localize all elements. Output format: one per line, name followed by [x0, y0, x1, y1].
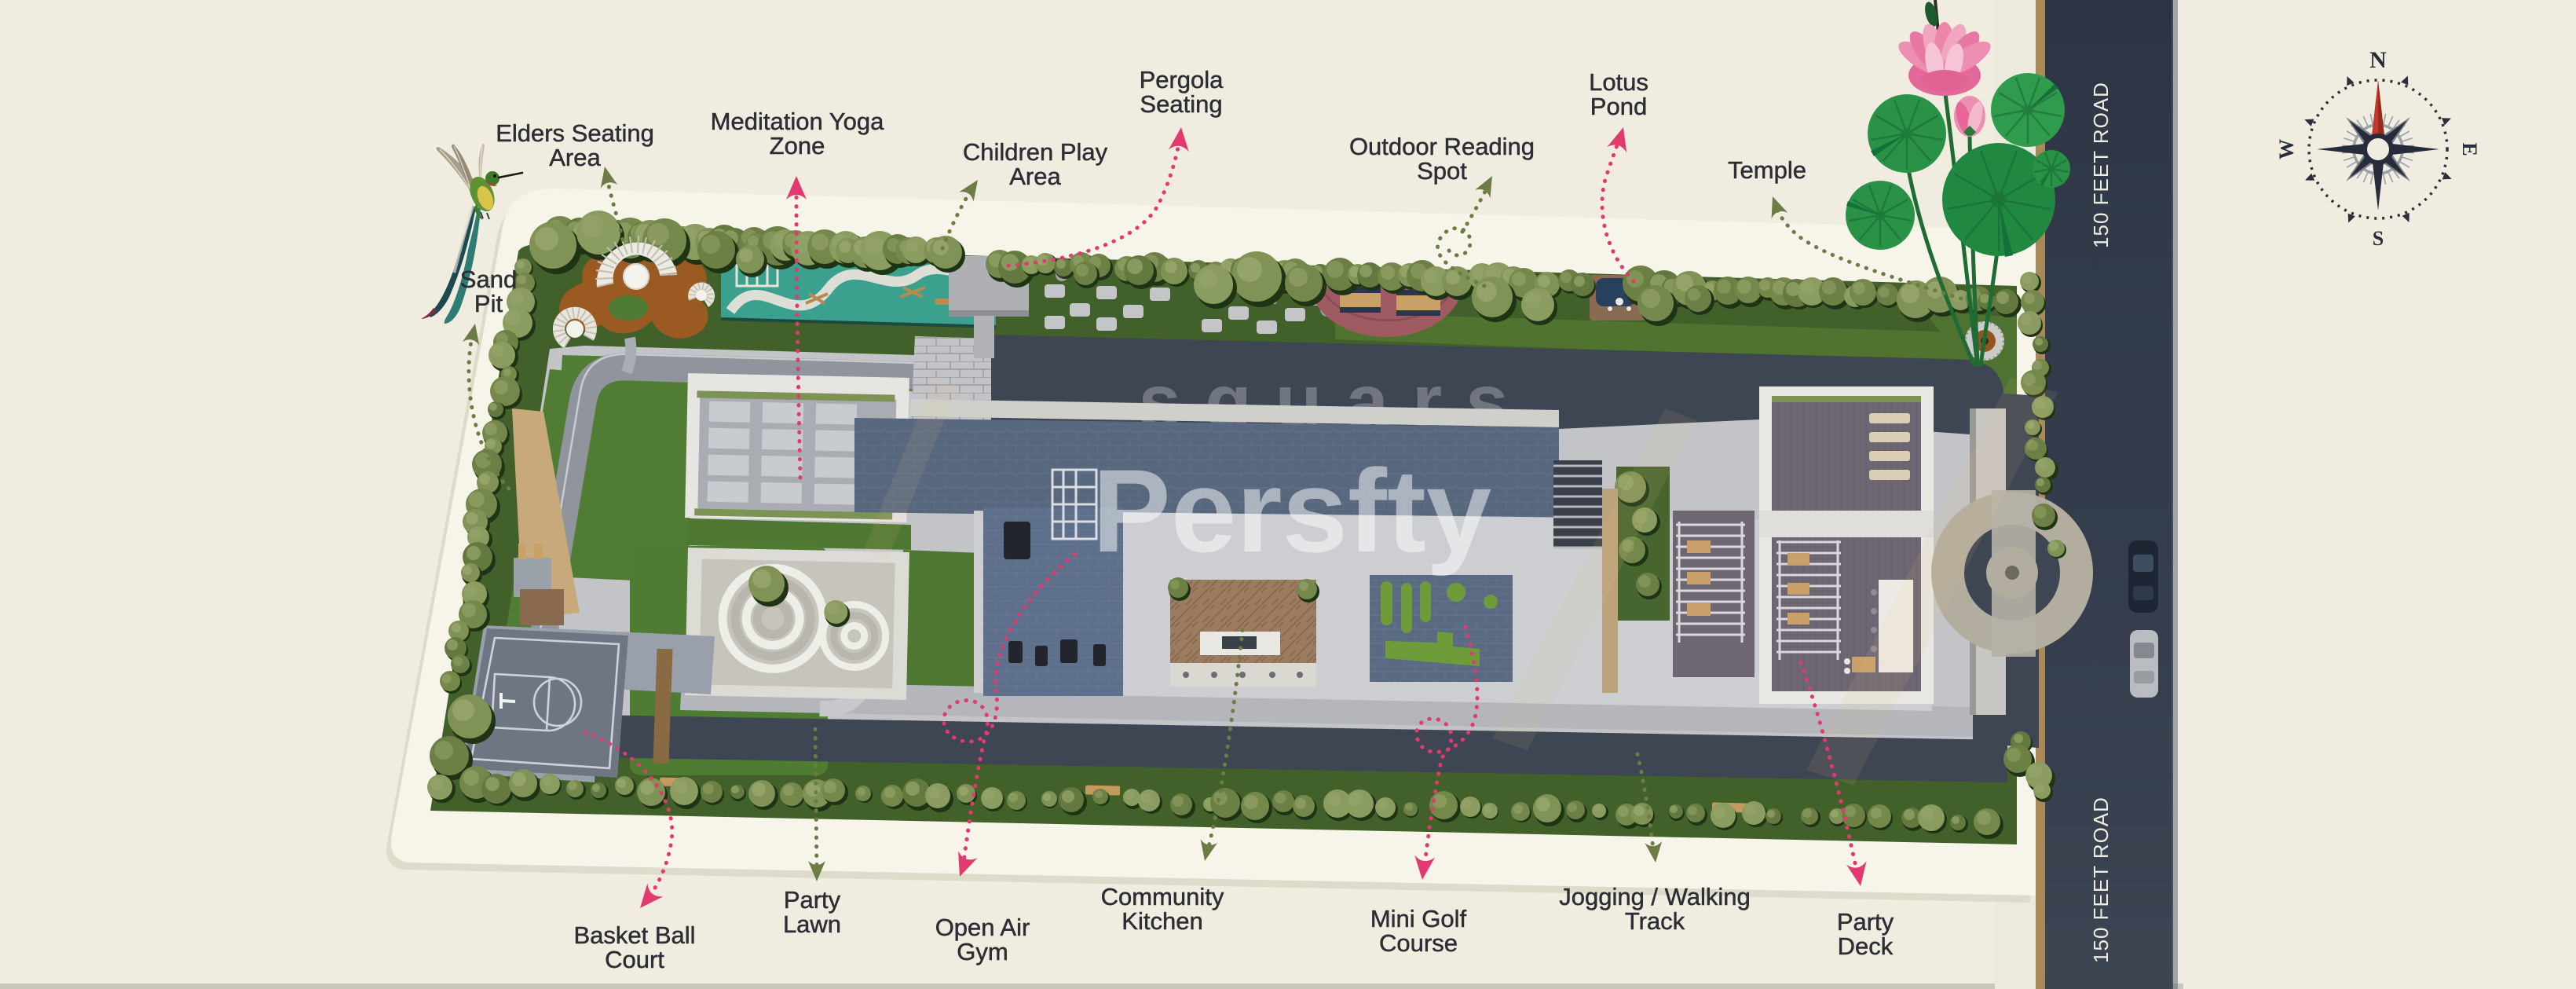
svg-text:150 FEET ROAD: 150 FEET ROAD: [2089, 82, 2113, 248]
svg-text:150 FEET ROAD: 150 FEET ROAD: [2089, 797, 2113, 963]
svg-text:PergolaSeating: PergolaSeating: [1140, 66, 1224, 118]
svg-text:PartyLawn: PartyLawn: [783, 886, 841, 938]
svg-text:E: E: [2458, 142, 2481, 156]
svg-text:Persfty: Persfty: [1092, 445, 1492, 577]
svg-text:N: N: [2369, 47, 2387, 73]
svg-text:LotusPond: LotusPond: [1589, 68, 1648, 120]
svg-text:W: W: [2275, 139, 2298, 159]
svg-text:PartyDeck: PartyDeck: [1837, 908, 1894, 960]
svg-text:S: S: [2373, 227, 2384, 250]
svg-text:Mini GolfCourse: Mini GolfCourse: [1370, 905, 1467, 957]
svg-text:Temple: Temple: [1728, 156, 1806, 184]
